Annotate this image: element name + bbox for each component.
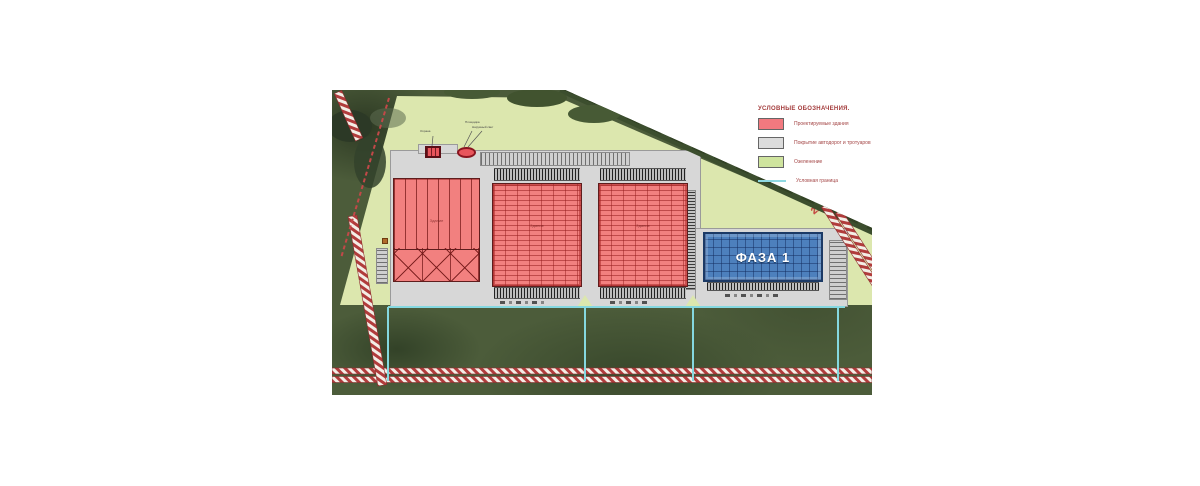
parking-strip-top [480,152,630,166]
legend-item-boundary: Условная граница [758,174,908,187]
checkpoint-building [425,146,441,158]
legend-item-landscaping: Озеленение [758,155,908,168]
building-1-columns [394,179,479,250]
building-1-bracing [394,248,479,281]
building-3-label: Здание [599,223,687,228]
conditional-boundary-line [388,307,845,381]
building-1: Здание [393,178,480,282]
annotation-pad-2: Наружный свет [472,126,493,130]
annotation-pad-1: Площадка [465,121,480,125]
building-3-docks-top [600,168,686,181]
site-plan-page: Здание Здание Здание ФАЗА 1 Охрана [0,0,1200,486]
legend-title: УСЛОВНЫЕ ОБОЗНАЧЕНИЯ. [758,106,908,112]
annotation-guard: Охрана [420,130,430,134]
building-2-docks-bottom [494,287,580,299]
legend-label-pavement: Покрытие автодорог и тротуаров [794,140,871,146]
building-2-label: Здание [493,223,581,228]
scale-bar [725,294,780,297]
scale-bar [610,301,650,304]
legend-label-boundary: Условная граница [796,178,838,184]
small-oval-structure [457,147,476,158]
small-utility-box [382,238,388,244]
building-phase1: ФАЗА 1 [703,232,823,282]
legend-item-pavement: Покрытие автодорог и тротуаров [758,136,908,149]
building-3-docks-bottom [600,287,686,299]
building-2-docks-top [494,168,580,181]
legend-swatch-landscaping [758,156,784,168]
legend: УСЛОВНЫЕ ОБОЗНАЧЕНИЯ. Проектируемые здан… [758,106,908,193]
parking-strip-right [829,240,847,300]
building-1-label: Здание [394,218,479,223]
legend-label-buildings: Проектируемые здания [794,121,849,127]
phase1-label: ФАЗА 1 [736,250,791,265]
road-bottom [332,368,872,383]
scale-bar [500,301,545,304]
legend-label-landscaping: Озеленение [794,159,822,165]
building-2: Здание [492,183,582,287]
legend-line-boundary [758,180,786,182]
road-topleft [334,90,362,141]
legend-swatch-pavement [758,137,784,149]
legend-swatch-buildings [758,118,784,130]
legend-item-buildings: Проектируемые здания [758,117,908,130]
phase1-docks-bottom [707,282,819,291]
building-3: Здание [598,183,688,287]
parking-strip-left [376,248,388,284]
